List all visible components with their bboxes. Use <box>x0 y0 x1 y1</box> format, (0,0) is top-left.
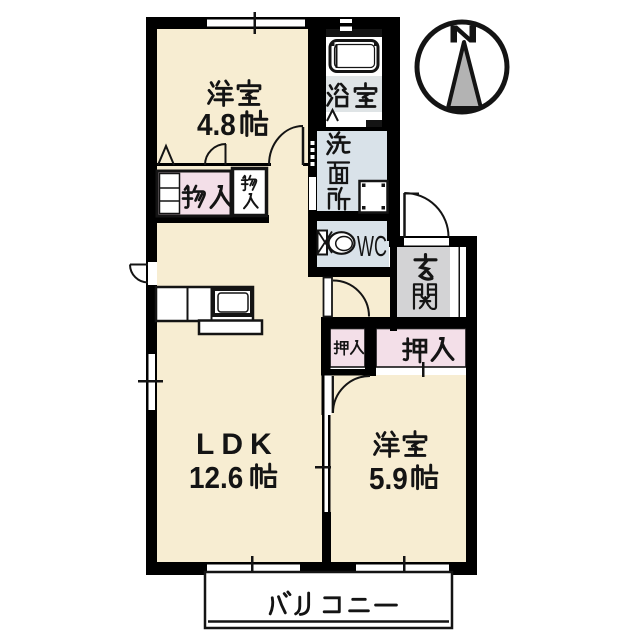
svg-text:WC: WC <box>357 231 387 263</box>
svg-text:4.8: 4.8 <box>197 108 236 143</box>
svg-text:12.6: 12.6 <box>189 461 243 496</box>
svg-text:5.9: 5.9 <box>369 462 408 497</box>
svg-text:LDK: LDK <box>196 428 279 461</box>
